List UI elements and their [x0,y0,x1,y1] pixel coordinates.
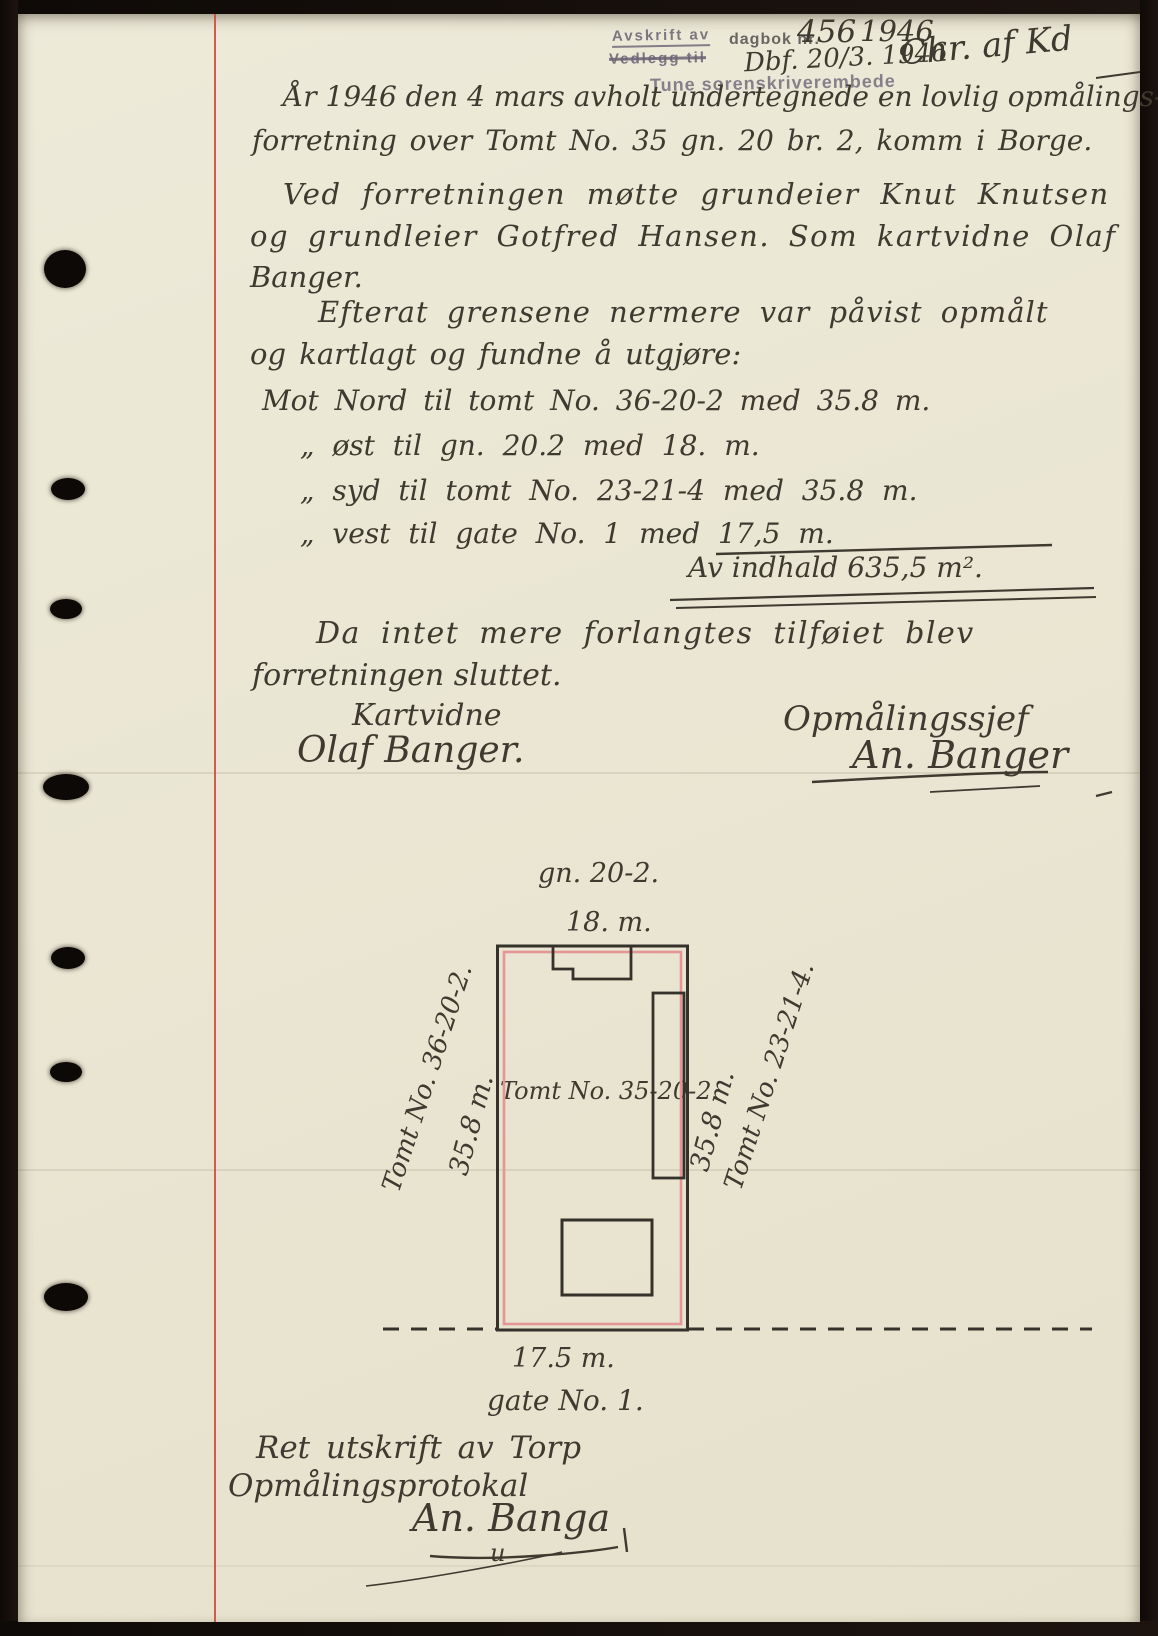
stamp-vedlegg-til: Vedlegg til [609,50,706,67]
handwritten-line: Efterat grensene nermere var påvist opmå… [318,297,1048,329]
punch-hole [44,1283,88,1311]
diagram-area-label: gn. 20-2. [538,859,659,889]
handwritten-line: forretningen sluttet. [252,659,561,692]
handwritten-line: Mot Nord til tomt No. 36-20-2 med 35.8 m… [262,386,930,417]
red-margin-line [214,14,216,1622]
handwritten-line: År 1946 den 4 mars avholt undertegnede e… [283,82,1158,113]
diagram-parcel-label: Tomt No. 35-20-2. [500,1078,719,1104]
punch-hole [51,947,85,969]
diagram-bottom-dimension: 17.5 m. [512,1344,615,1374]
stamp-avskrift-av: Avskrift av [612,27,710,48]
handwritten-line: „ øst til gn. 20.2 med 18. m. [300,431,760,462]
scan-edge-top [0,0,1158,14]
area-total-line: Av indhald 635,5 m². [688,553,983,584]
punch-hole [50,1062,82,1082]
handwritten-line: og grundleier Gotfred Hansen. Som kartvi… [250,221,1117,253]
surveyor-signature: An. Banger [852,735,1068,777]
punch-hole [50,599,82,619]
witness-signature: Olaf Banger. [297,731,524,771]
handwritten-line: „ vest til gate No. 1 med 17,5 m. [300,519,834,550]
scan-edge-bottom [0,1621,1158,1636]
scan-edge-left [0,0,18,1636]
witness-title: Kartvidne [352,699,502,732]
paper-crease [18,1565,1140,1567]
diagram-street-label: gate No. 1. [487,1386,644,1417]
paper-page [18,14,1140,1622]
punch-hole [44,250,86,288]
scanned-document: { "header": { "stamp_avskrift": "Avskrif… [0,0,1158,1636]
punch-hole [51,478,85,500]
certification-line: Ret utskrift av Torp [256,1431,581,1465]
handwritten-line: og kartlagt og fundne å utgjøre: [250,339,741,371]
correction-mark: u [490,1540,505,1566]
handwritten-line: forretning over Tomt No. 35 gn. 20 br. 2… [252,126,1092,157]
punch-hole [43,774,89,800]
handwritten-line: „ syd til tomt No. 23-21-4 med 35.8 m. [300,476,918,507]
handwritten-line: Ved forretningen møtte grundeier Knut Kn… [283,179,1110,211]
footer-signature: An. Banga [412,1498,610,1540]
scan-edge-right [1140,0,1158,1636]
diagram-top-dimension: 18. m. [566,908,652,938]
handwritten-line: Banger. [250,262,363,294]
handwritten-line: Da intet mere forlangtes tilføiet blev [316,617,975,650]
paper-crease [18,1169,1140,1171]
